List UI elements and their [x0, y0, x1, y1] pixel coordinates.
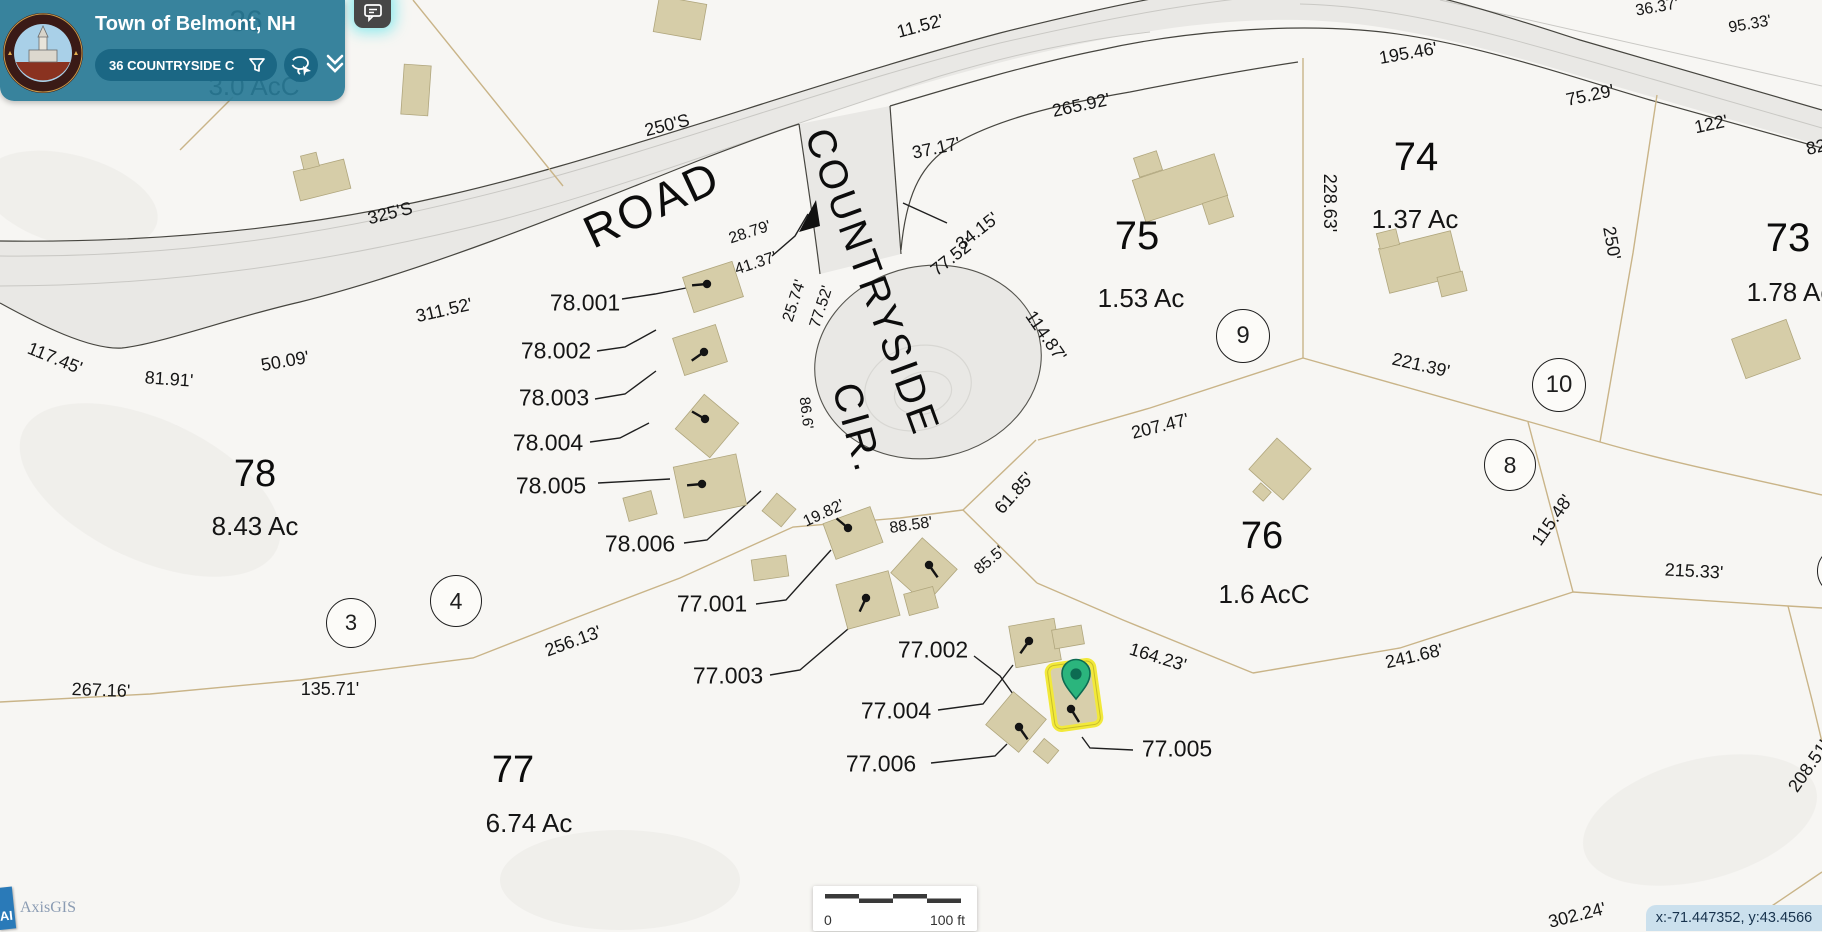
building-footprint — [683, 261, 744, 312]
building-footprint — [823, 507, 883, 560]
building-footprint — [751, 555, 789, 581]
search-box[interactable] — [95, 49, 277, 81]
building-footprint — [986, 692, 1047, 753]
well-symbol — [844, 524, 852, 532]
cul-de-sac-bulb — [797, 244, 1060, 479]
search-input[interactable] — [109, 58, 247, 73]
building-footprint — [1052, 625, 1085, 649]
double-chevron-down-icon — [325, 53, 345, 75]
building-footprint — [673, 454, 746, 518]
well-symbol — [698, 480, 706, 488]
parcel-map-graphics — [0, 0, 1822, 931]
scale-distance-label: 100 ft — [930, 912, 965, 928]
well-symbol — [862, 594, 870, 602]
building-footprint — [1732, 319, 1801, 378]
building-footprint — [762, 493, 796, 527]
comment-icon — [363, 2, 383, 22]
well-symbol — [700, 348, 708, 356]
collapse-panel-button[interactable] — [325, 53, 345, 78]
selected-parcel-highlight — [1047, 660, 1101, 730]
app-header-panel: Town of Belmont, NH — [0, 0, 345, 101]
scale-zero-label: 0 — [824, 912, 832, 928]
lasso-select-button[interactable] — [284, 48, 318, 82]
building-footprint — [653, 0, 707, 40]
building-footprint — [623, 491, 657, 522]
well-symbol — [701, 415, 709, 423]
map-canvas[interactable]: ROADCOUNTRYSIDECIR.787776757473368.43 Ac… — [0, 0, 1822, 931]
well-symbol — [703, 280, 711, 288]
app-title: Town of Belmont, NH — [95, 13, 296, 36]
comment-button[interactable] — [354, 0, 391, 28]
building-footprint — [904, 586, 939, 615]
lasso-select-icon — [289, 53, 313, 77]
building-footprint — [1033, 738, 1058, 763]
coordinate-readout: x:-71.447352, y:43.4566 — [1646, 905, 1822, 931]
well-symbol — [1015, 723, 1023, 731]
building-footprint — [401, 64, 431, 116]
building-footprint — [293, 159, 351, 201]
well-symbol — [1025, 637, 1033, 645]
cul-de-sac-stem — [799, 106, 901, 274]
axisgis-brand: AI AxisGIS — [0, 887, 76, 929]
well-symbol — [925, 561, 933, 569]
building-footprint — [1009, 618, 1062, 667]
scale-bar-graphic — [813, 886, 977, 910]
cai-logo-badge: AI — [0, 887, 16, 931]
coordinate-text: x:-71.447352, y:43.4566 — [1656, 910, 1812, 926]
parcel-boundaries — [0, 0, 1822, 931]
scale-bar: 0 100 ft — [813, 886, 977, 931]
building-footprint — [675, 394, 738, 457]
filter-funnel-icon[interactable] — [247, 55, 267, 75]
axisgis-wordmark: AxisGIS — [20, 899, 76, 917]
building-footprint — [673, 325, 728, 376]
town-seal-logo — [2, 10, 84, 96]
